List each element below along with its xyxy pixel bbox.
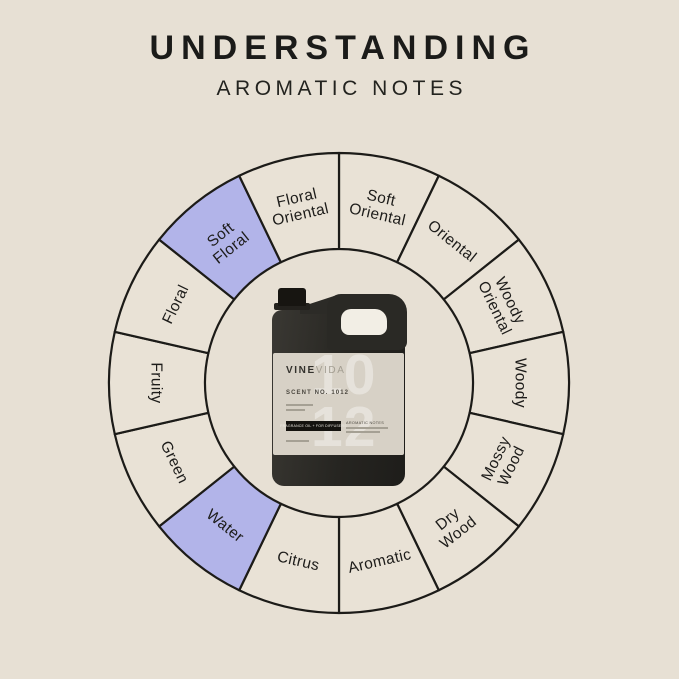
bottle-handle-hole [341,309,387,335]
label-notes-heading: AROMATIC NOTES [346,421,384,425]
wheel-label-fruity: Fruity [148,362,165,403]
label-fineprint-line [286,440,309,442]
scent-number: SCENT NO. 1012 [286,390,349,396]
label-fineprint-line [286,404,313,406]
bottle-label: 10 12 VINEVIDA SCENT NO. 1012 FRAGRANCE … [273,353,404,455]
label-fineprint-line [346,427,388,429]
bottle-cap [278,288,306,306]
infographic: UNDERSTANDING AROMATIC NOTES SoftOrienta… [0,0,679,679]
brand-logo-bold: VINE [286,365,316,376]
label-black-bar: FRAGRANCE OIL + FOR DIFFUSERS [286,421,341,431]
brand-logo: VINEVIDA [286,365,346,376]
label-fineprint-line [346,431,380,433]
wheel-label-woody: Woody [512,358,529,408]
label-fineprint-line [286,409,305,411]
brand-logo-light: VIDA [316,365,346,376]
product-bottle: 10 12 VINEVIDA SCENT NO. 1012 FRAGRANCE … [272,288,407,486]
